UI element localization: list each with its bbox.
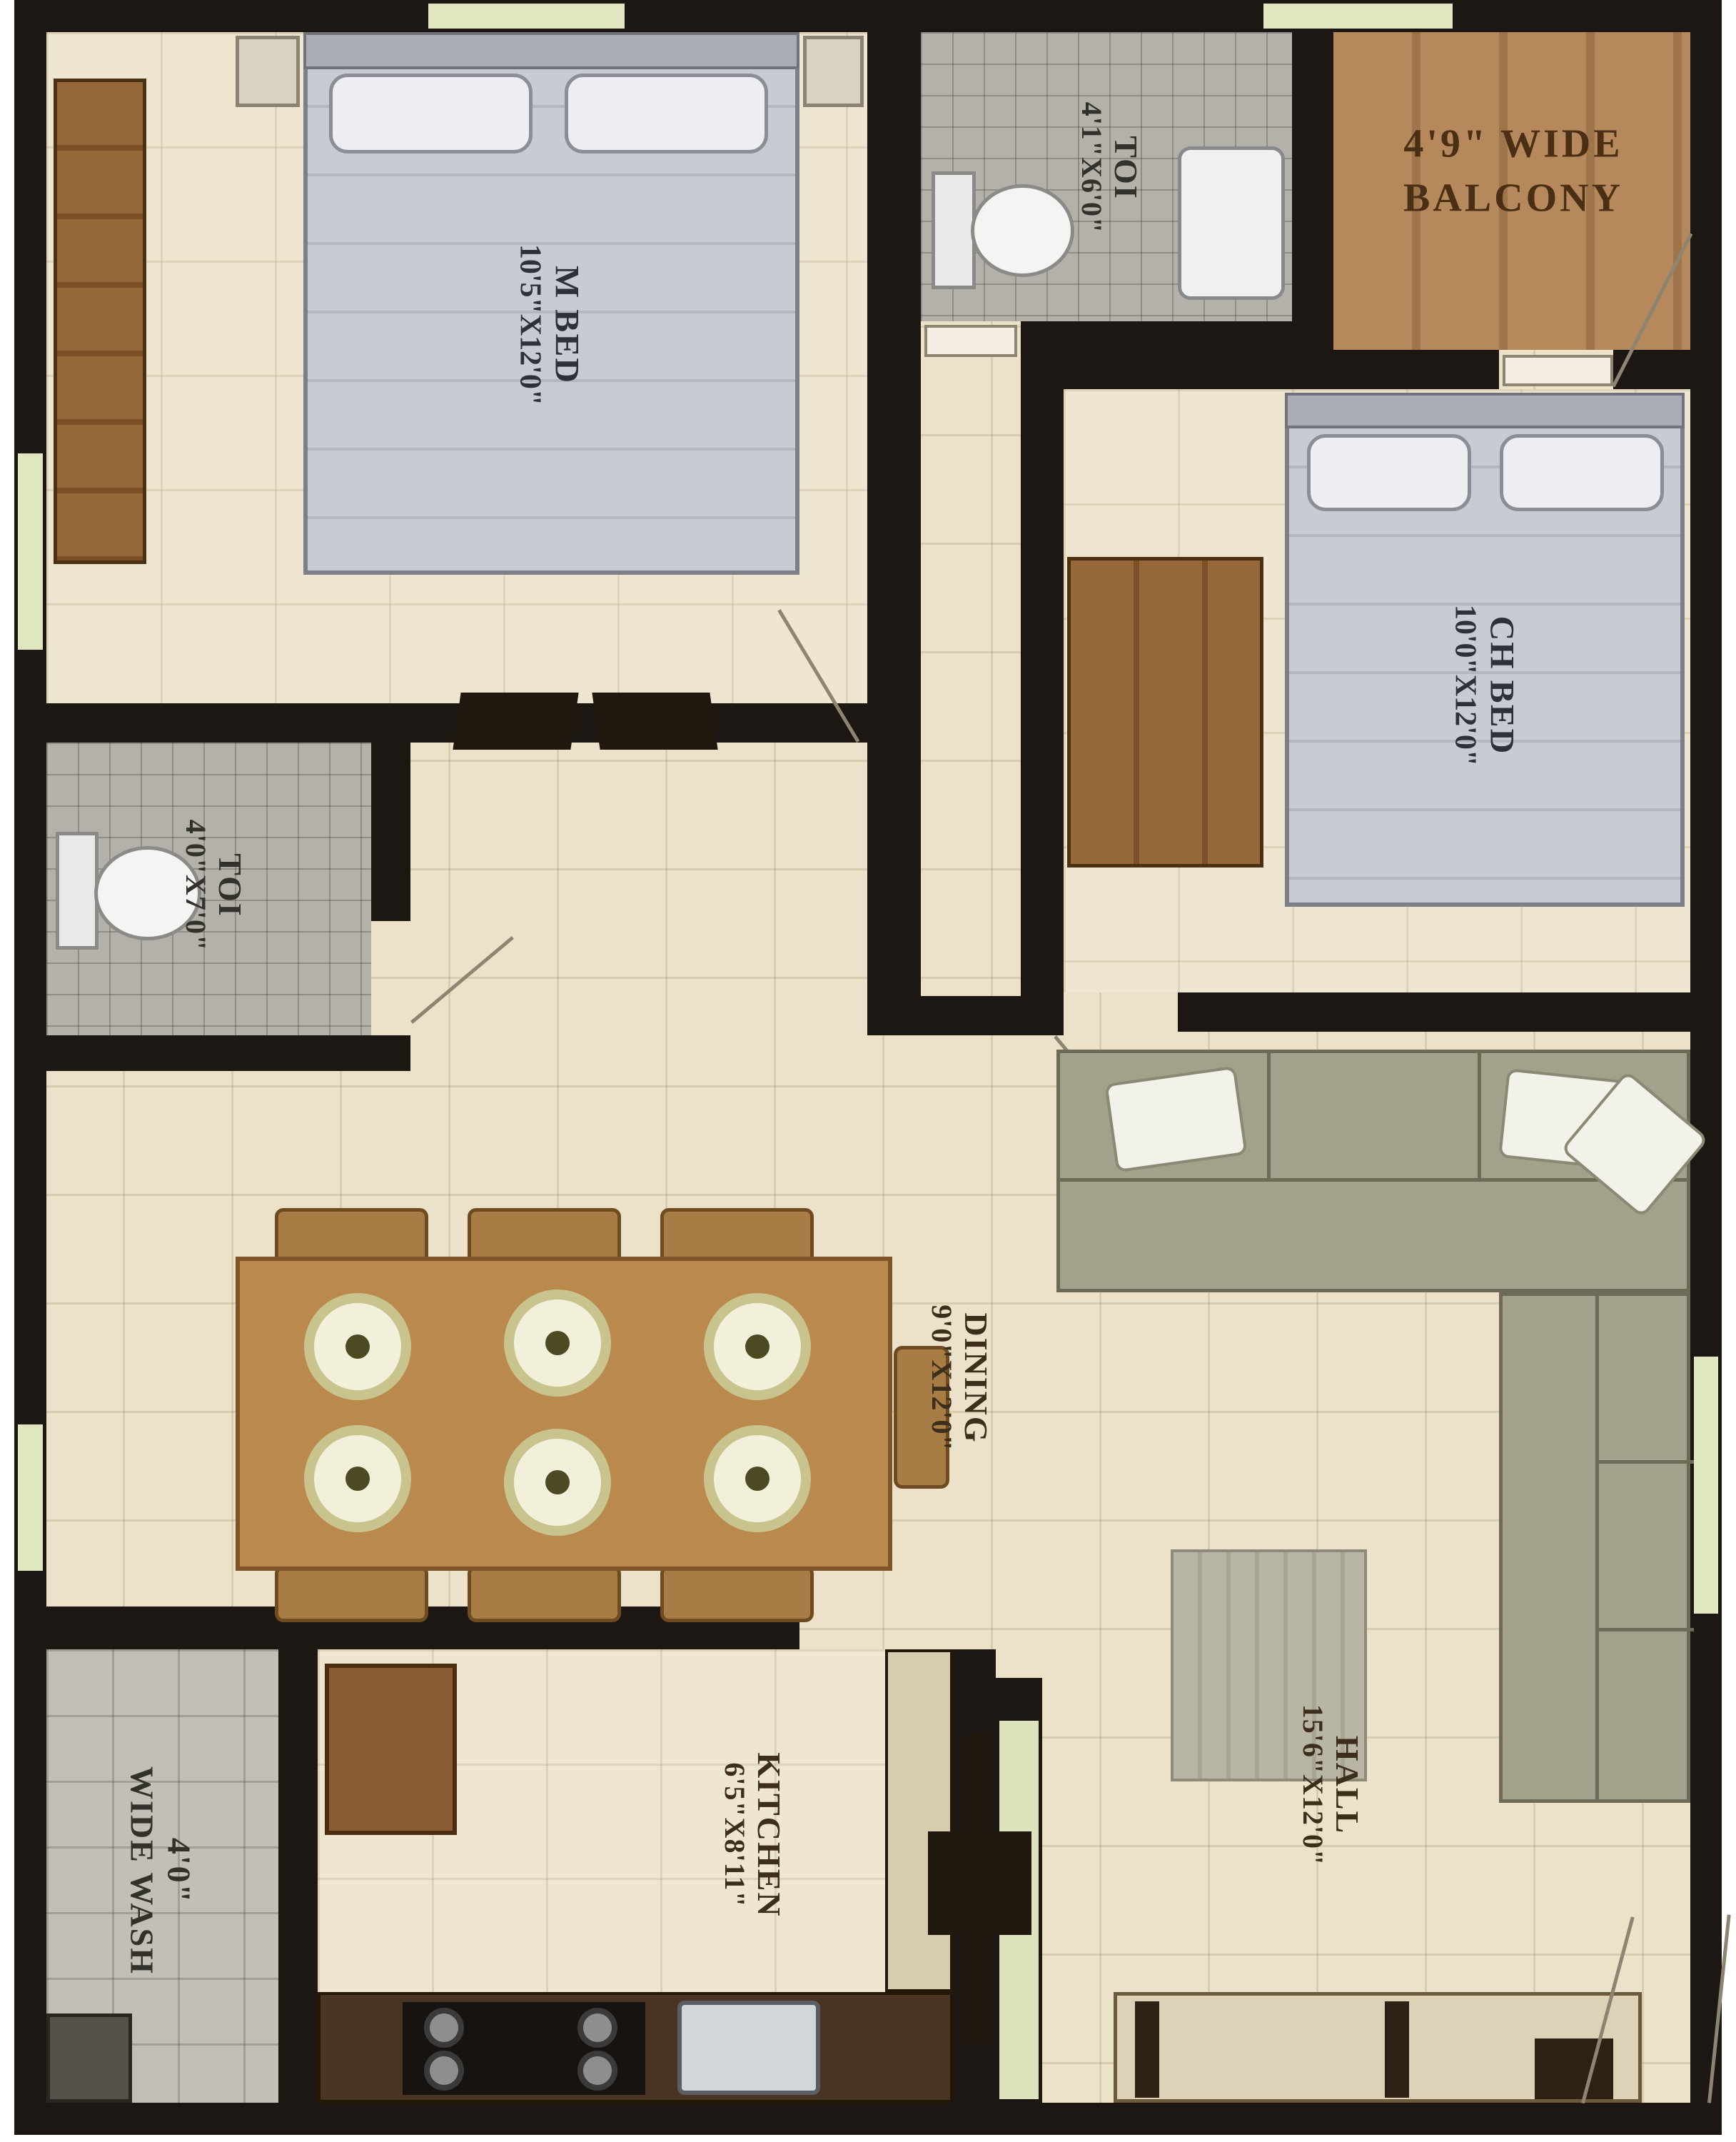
hall-dims: 15'6"X12'0" [1297,1704,1329,1866]
ch-bed-wardrobe [1067,557,1263,868]
m-bed-headboard [303,32,799,69]
m-bed-dims: 10'5"X12'0" [513,244,547,406]
m-bed-label: M BED 10'5"X12'0" [513,244,586,406]
wall-dining-stub [867,996,1039,1035]
ch-bed-pillow-left [1307,434,1471,511]
kitchen-name: KITCHEN [751,1752,788,1917]
wash-sink [46,2013,132,2103]
console-bar [1135,2001,1159,2098]
wall-balcony-bottom [1333,350,1499,389]
kitchen-fridge [325,1664,457,1835]
kitchen-counter [318,1992,953,2103]
sofa-horizontal [1056,1050,1690,1292]
m-bed-door-panel-left [453,693,578,750]
m-bed-nightstand-right [803,36,864,107]
sofa-seam [1267,1053,1271,1178]
toi-top-door-leaf [924,325,1017,357]
toi-top-wc-tank [932,171,976,289]
ch-bed-label: CH BED 10'0"X12'0" [1448,605,1521,766]
wall-toi-left-bottom [14,1035,410,1071]
toi-top-label: TOI 4'1"X6'0" [1076,102,1144,234]
wall-chbed-bottom [1178,992,1690,1032]
hall-name: HALL [1329,1704,1366,1866]
wall-mbed-bottom [14,703,867,743]
m-bed-name: M BED [547,244,587,406]
dining-chair-bottom-3 [660,1565,814,1622]
wall-shaft-cap [996,1678,1042,1717]
dining-chair-bottom-2 [468,1565,621,1622]
wash-label-line2: WIDE WASH [123,1766,161,1975]
balcony-door-leaf [1503,355,1613,386]
plate [304,1293,411,1400]
sofa-seam [1595,1628,1694,1631]
wall-balcony-bottom2 [1613,350,1690,389]
wall-wash-divider [278,1649,318,2103]
wall-chbed-left [1021,389,1064,1035]
wall-toi-left-right [371,743,410,921]
stove [403,2002,645,2095]
burner [577,2008,617,2048]
hall-label: HALL 15'6"X12'0" [1297,1704,1366,1866]
burner [424,2008,464,2048]
wall-toi-top-right [1292,0,1333,389]
sofa-pillow [1104,1066,1248,1173]
toi-left-wc-tank [56,832,99,950]
toi-left-label: TOI 4'0"X7'0" [180,820,248,952]
plate [504,1429,611,1536]
toi-top-washbasin [1178,146,1285,300]
toi-top-dims: 4'1"X6'0" [1076,102,1108,234]
window-toi-balcony-top [1260,0,1456,32]
plate [304,1425,411,1532]
console-tv [1535,2038,1613,2099]
dining-dims: 9'0"X12'0" [926,1304,958,1452]
tv-console [1114,1992,1642,2103]
burner [577,2051,617,2091]
balcony-label: 4'9" WIDE BALCONY [1403,117,1623,225]
dining-label: DINING 9'0"X12'0" [926,1304,994,1452]
sofa-seam [1478,1053,1481,1178]
ch-bed-dims: 10'0"X12'0" [1448,605,1482,766]
wall-mbed-right [867,0,921,1035]
toi-left-dims: 4'0"X7'0" [180,820,212,952]
sofa-seam [1595,1296,1599,1799]
wall-toi-top-bottom [1021,321,1292,389]
plate [704,1293,811,1400]
sofa-vertical [1499,1292,1690,1803]
wall-bottom [14,2103,1722,2135]
window-mbed-left [14,450,46,653]
console-bar [1385,2001,1409,2098]
ch-bed-pillow-right [1500,434,1664,511]
sofa-seam [1060,1178,1687,1182]
toi-left-name: TOI [212,820,249,952]
plate [704,1425,811,1532]
kitchen-side-counter [885,1649,953,1992]
m-bed-nightstand-left [236,36,300,107]
window-dining-left [14,1421,46,1574]
kitchen-label: KITCHEN 6'5"X8'11" [719,1752,787,1917]
wall-right [1690,0,1722,2135]
wash-label-line1: 4'0" [161,1766,198,1975]
dining-name: DINING [958,1304,995,1452]
balcony-label-line2: BALCONY [1403,171,1623,226]
dining-table [236,1257,892,1571]
burner [424,2051,464,2091]
floor-plan: M BED 10'5"X12'0" 4'9" WIDE BALCONY CH B… [0,0,1736,2142]
kitchen-dims: 6'5"X8'11" [719,1752,751,1917]
m-bed-pillow-left [329,74,533,154]
plate [504,1289,611,1397]
window-mbed-top [425,0,628,32]
window-hall-right [1690,1353,1722,1617]
wash-label: 4'0" WIDE WASH [123,1766,197,1975]
m-bed-wardrobe [54,79,146,564]
toi-top-name: TOI [1108,102,1145,234]
dining-chair-bottom-1 [275,1565,428,1622]
kitchen-door-leaf [965,1735,992,2042]
balcony-label-line1: 4'9" WIDE [1403,117,1623,171]
sofa-seam [1595,1460,1694,1464]
ch-bed-name: CH BED [1483,605,1522,766]
ch-bed-headboard [1285,393,1685,428]
m-bed-door-panel-right [592,693,717,750]
kitchen-sink [677,2001,820,2095]
toi-top-wc-bowl [971,184,1074,277]
m-bed-pillow-right [565,74,768,154]
